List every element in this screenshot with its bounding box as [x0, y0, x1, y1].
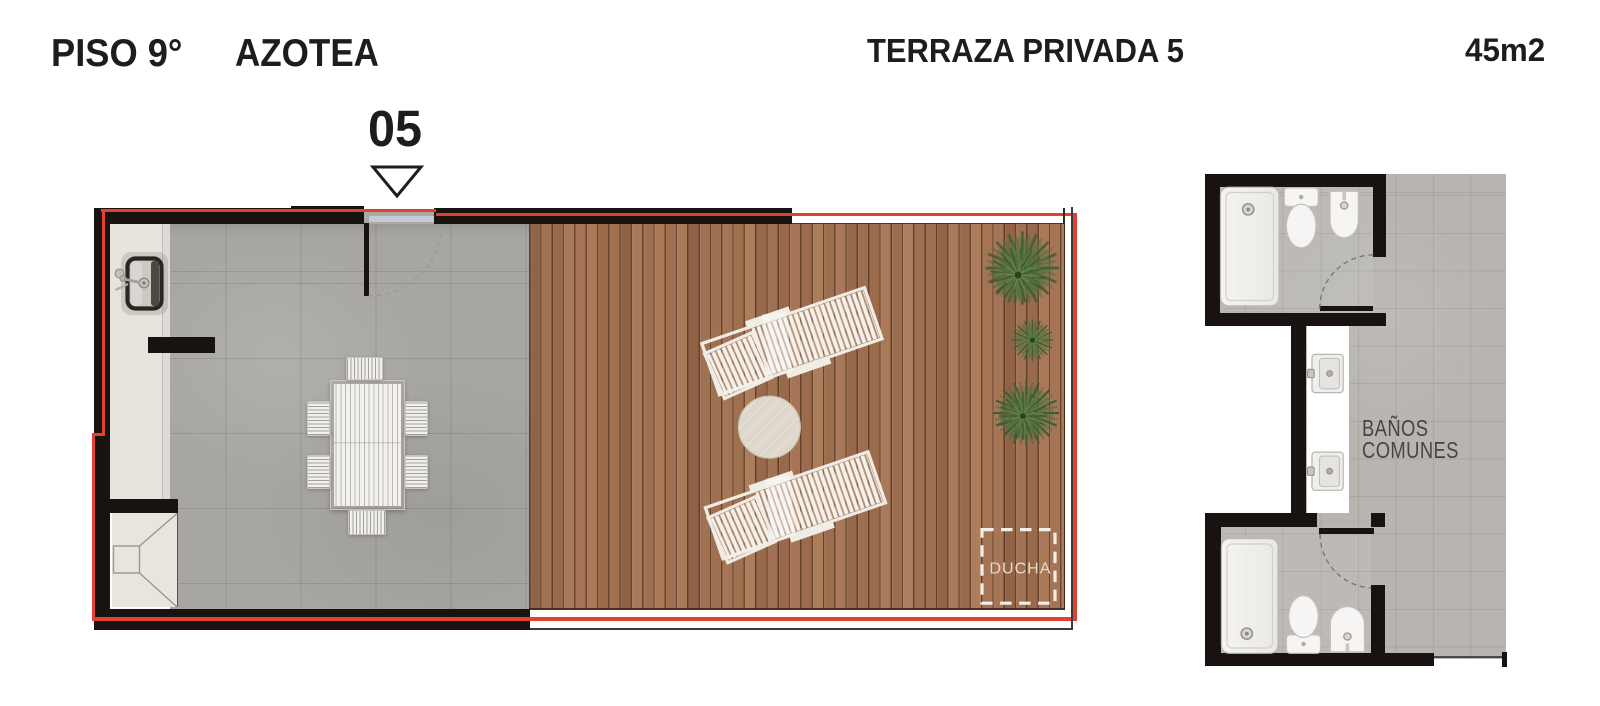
svg-text:DUCHA: DUCHA: [989, 560, 1051, 577]
